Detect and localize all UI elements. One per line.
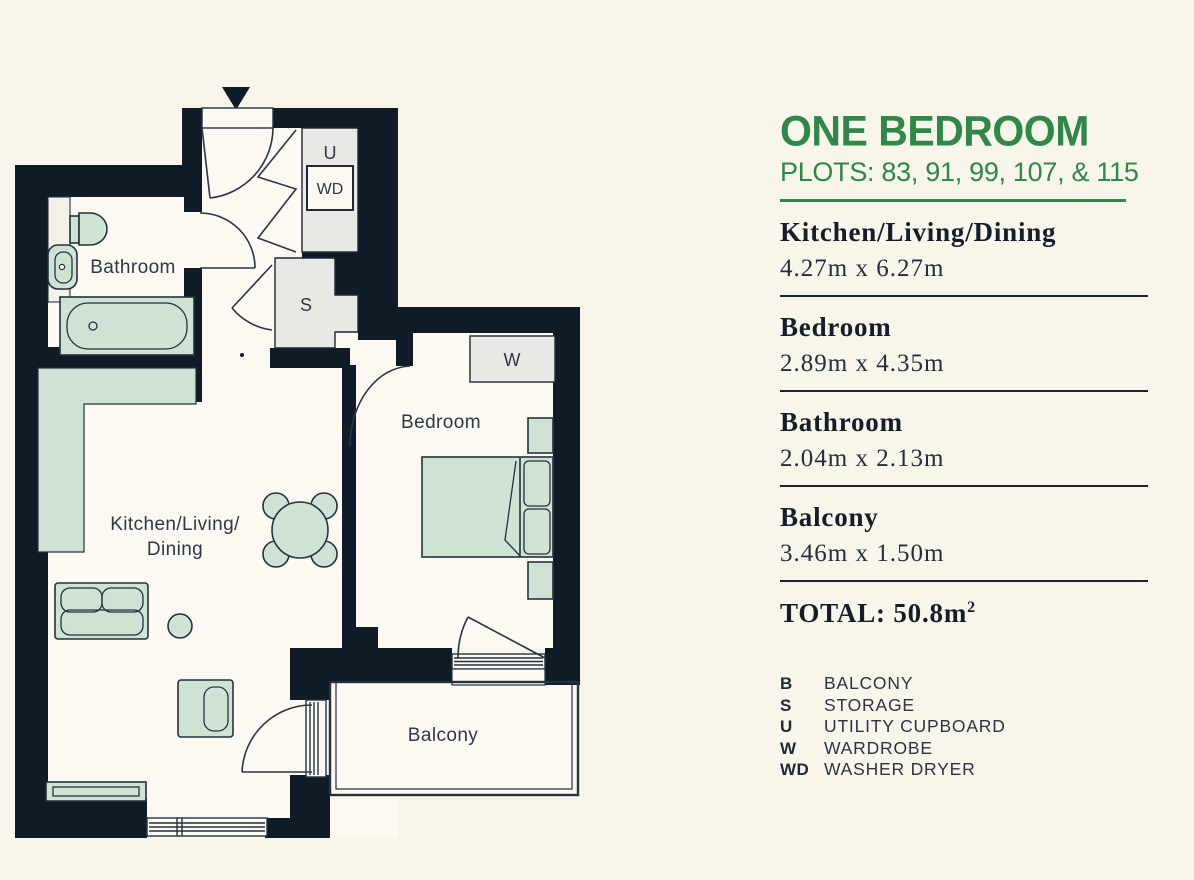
room-dimensions: 2.04m x 2.13m <box>780 445 1152 473</box>
room-name: Bathroom <box>780 407 1152 438</box>
green-divider <box>780 199 1126 202</box>
room-spec-balcony: Balcony 3.46m x 1.50m <box>780 502 1152 582</box>
info-panel: ONE BEDROOM PLOTS: 83, 91, 99, 107, & 11… <box>780 110 1152 781</box>
room-spec-bathroom: Bathroom 2.04m x 2.13m <box>780 407 1152 487</box>
bottom-window <box>147 818 267 836</box>
divider <box>780 485 1148 487</box>
living-balcony-window <box>306 700 326 777</box>
dining-table-icon <box>263 493 337 567</box>
washer-dryer-key-label: WD <box>317 181 344 198</box>
wardrobe-key-label: W <box>504 350 521 370</box>
nightstand-bottom <box>528 562 553 599</box>
balcony-label: Balcony <box>408 725 478 746</box>
side-table-icon <box>168 614 192 638</box>
bedroom-label: Bedroom <box>401 412 481 433</box>
entry-door-recess <box>202 108 273 128</box>
legend-row-washer-dryer: WD WASHER DRYER <box>780 759 1152 781</box>
nightstand-top <box>528 418 553 453</box>
room-dimensions: 4.27m x 6.27m <box>780 255 1152 283</box>
room-dimensions: 3.46m x 1.50m <box>780 540 1152 568</box>
bed-icon <box>422 457 553 557</box>
floorplan-drawing: Bathroom Kitchen/Living/ Dining Bedroom … <box>0 0 620 880</box>
room-name: Balcony <box>780 502 1152 533</box>
legend: B BALCONY S STORAGE U UTILITY CUPBOARD W… <box>780 673 1152 781</box>
sink-icon <box>48 245 77 289</box>
bathroom-label: Bathroom <box>90 257 176 278</box>
legend-key: WD <box>780 760 824 780</box>
legend-key: B <box>780 674 824 694</box>
room-spec-bedroom: Bedroom 2.89m x 4.35m <box>780 312 1152 392</box>
armchair-icon <box>178 680 233 737</box>
room-dimensions: 2.89m x 4.35m <box>780 350 1152 378</box>
divider <box>780 390 1148 392</box>
bathtub-icon <box>60 297 194 355</box>
room-name: Bedroom <box>780 312 1152 343</box>
squared-superscript: 2 <box>967 599 976 616</box>
toilet-icon <box>70 213 107 245</box>
legend-value: WARDROBE <box>824 738 933 759</box>
utility-key-label: U <box>324 143 337 163</box>
kitchen-label-line1: Kitchen/Living/ <box>110 514 240 535</box>
legend-row-utility: U UTILITY CUPBOARD <box>780 716 1152 738</box>
entry-arrow-icon <box>222 87 250 110</box>
storage-key-label: S <box>300 295 312 315</box>
legend-value: UTILITY CUPBOARD <box>824 716 1006 737</box>
legend-value: BALCONY <box>824 673 913 694</box>
legend-key: S <box>780 696 824 716</box>
legend-row-wardrobe: W WARDROBE <box>780 738 1152 760</box>
kitchen-label-line2: Dining <box>147 539 203 560</box>
sofa-icon <box>55 583 148 639</box>
bedroom-balcony-window <box>452 654 545 685</box>
legend-key: U <box>780 717 824 737</box>
floorplan-page: Bathroom Kitchen/Living/ Dining Bedroom … <box>0 0 1194 880</box>
plots-subtitle: PLOTS: 83, 91, 99, 107, & 115 <box>780 157 1152 188</box>
sideboard-icon <box>46 782 146 801</box>
legend-row-storage: S STORAGE <box>780 695 1152 717</box>
divider <box>780 580 1148 582</box>
legend-value: WASHER DRYER <box>824 759 976 780</box>
room-name: Kitchen/Living/Dining <box>780 217 1152 248</box>
page-title: ONE BEDROOM <box>780 110 1152 153</box>
legend-key: W <box>780 739 824 759</box>
room-spec-kitchen: Kitchen/Living/Dining 4.27m x 6.27m <box>780 217 1152 297</box>
divider <box>780 295 1148 297</box>
legend-row-balcony: B BALCONY <box>780 673 1152 695</box>
total-area: TOTAL: 50.8m2 <box>780 598 1152 629</box>
legend-value: STORAGE <box>824 695 915 716</box>
